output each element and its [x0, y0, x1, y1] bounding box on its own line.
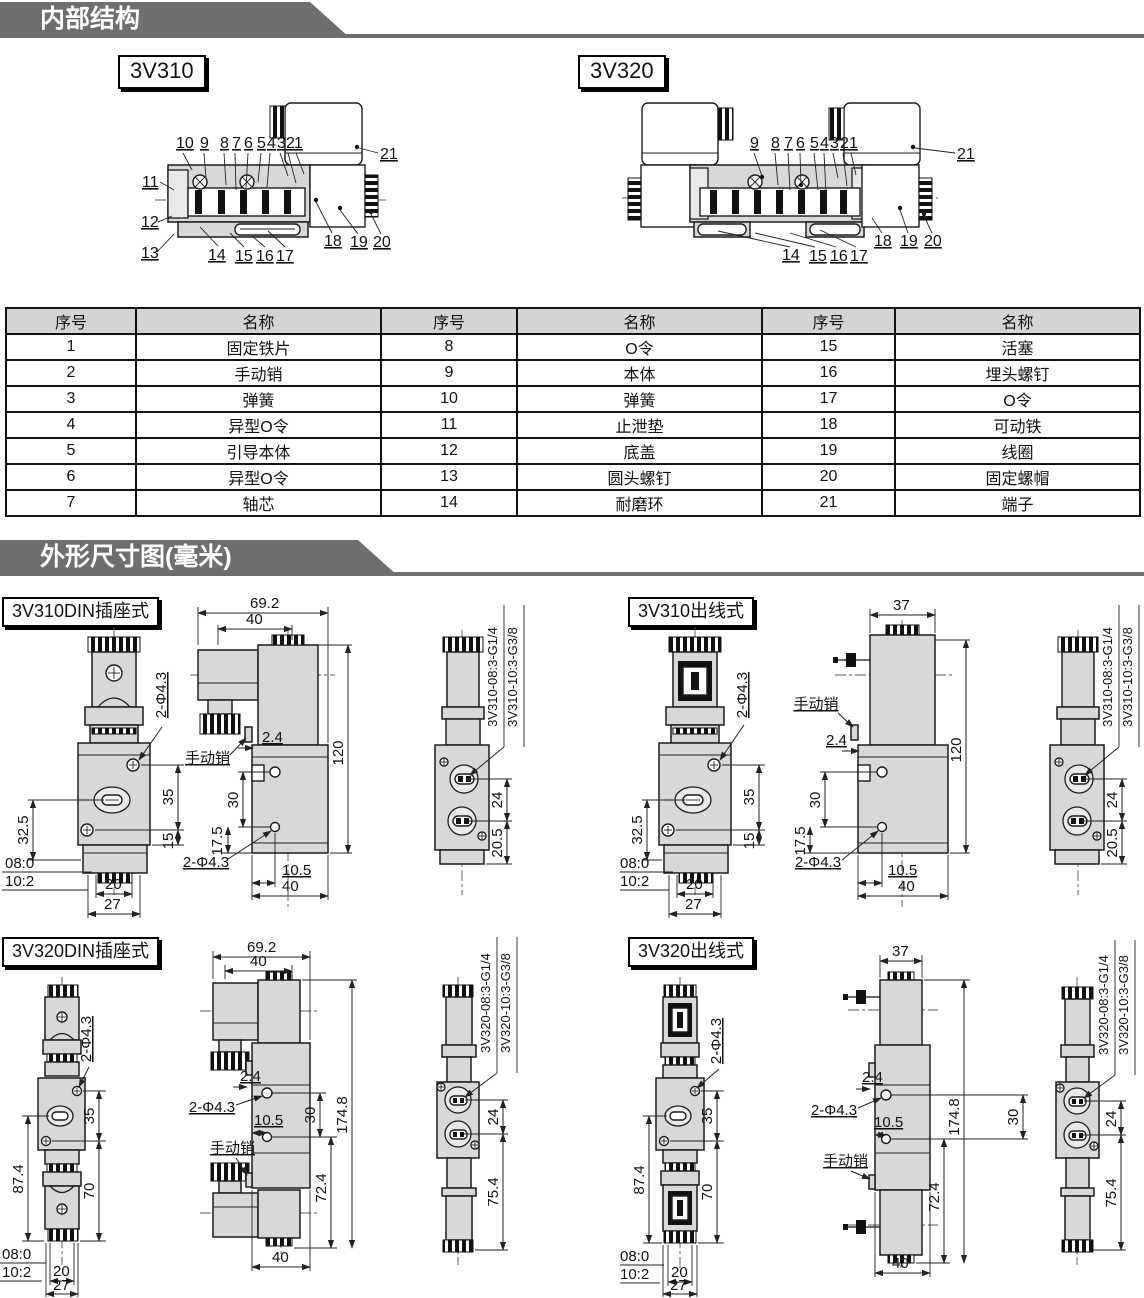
dim-label: 75.4 — [485, 1177, 502, 1206]
port-note: 10:2 — [620, 1266, 649, 1283]
dim-label: 20 — [686, 876, 703, 893]
wire-lead — [856, 990, 866, 1004]
din-screw-icon — [57, 1012, 67, 1022]
catalog-page: 内部结构 3V310 3V320 10 9 8 7 6 5 4 3 2 — [0, 0, 1144, 1298]
dim-label: 2.4 — [862, 1069, 883, 1086]
dim-label: 120 — [330, 740, 347, 765]
callout: 3 — [830, 135, 839, 152]
dim-label: 10.5 — [282, 862, 311, 879]
screw-icon — [81, 824, 93, 836]
callout: 6 — [796, 135, 805, 152]
manual-pin-label: 手动销 — [793, 696, 838, 713]
coil-block-right — [862, 165, 919, 227]
dim-label: 174.8 — [946, 1098, 963, 1136]
callout: 9 — [750, 135, 759, 152]
front-view — [656, 977, 704, 1270]
cell: 5 — [6, 438, 136, 464]
callout: 19 — [900, 233, 918, 250]
table-row: 6异型O令13圆头螺钉20固定螺帽 — [6, 464, 1140, 490]
manual-pin — [246, 1173, 252, 1187]
dim-label: 37 — [892, 943, 909, 960]
col-header: 序号 — [6, 308, 136, 334]
dim-label: 17.5 — [209, 826, 226, 855]
port-note: 10:2 — [620, 873, 649, 890]
dim-label: 15 — [741, 833, 758, 850]
coil-top — [1065, 999, 1090, 1045]
col-header: 名称 — [136, 308, 381, 334]
dim-label: 40 — [272, 1249, 289, 1266]
callout: 18 — [324, 233, 342, 250]
callout: 20 — [373, 234, 391, 251]
section-title: 内部结构 — [40, 5, 140, 33]
fixing-nut-left — [628, 178, 641, 220]
port-note: 08:0 — [620, 855, 649, 872]
dim-label: 2-Φ4.3 — [795, 854, 841, 871]
callout: 16 — [830, 248, 848, 265]
valve-body — [252, 745, 328, 853]
dim-label: 40 — [898, 878, 915, 895]
cell: 7 — [6, 490, 136, 516]
dim-label: 32.5 — [629, 815, 646, 844]
callout: 5 — [257, 135, 266, 152]
coil — [870, 635, 935, 745]
cell: O令 — [895, 386, 1140, 412]
cell: 1 — [6, 334, 136, 360]
callout: 15 — [809, 248, 827, 265]
dim-label: 2.4 — [262, 729, 283, 746]
cell: 埋头螺钉 — [895, 360, 1140, 386]
coil-bottom — [258, 1190, 300, 1238]
dim-label: 2.4 — [826, 732, 847, 749]
dim-label: 2-Φ4.3 — [189, 1099, 235, 1116]
dim-label: 120 — [948, 737, 965, 762]
coil-top — [446, 997, 472, 1045]
table-row: 3弹簧10弹簧17O令 — [6, 386, 1140, 412]
callout: 10 — [176, 135, 194, 152]
cell: 端子 — [895, 490, 1140, 516]
cell: 止泄垫 — [517, 412, 762, 438]
table-row: 5引导本体12底盖19线圈 — [6, 438, 1140, 464]
model-port-label: 3V310-10:3-G3/8 — [1120, 627, 1135, 727]
port-note: 08:0 — [2, 1246, 31, 1263]
callout: 21 — [957, 146, 975, 163]
end-view — [1050, 630, 1104, 895]
model-label-3v320: 3V320 — [578, 55, 666, 89]
dim-label: 30 — [225, 792, 242, 809]
coil-block-left — [641, 165, 695, 227]
dim-label: 40 — [246, 611, 263, 628]
manual-override-slot — [810, 224, 860, 235]
callout: 6 — [244, 135, 253, 152]
screw-icon — [708, 759, 720, 771]
dim-label: 40 — [250, 953, 267, 970]
screw-icon — [1055, 758, 1063, 766]
callout: 5 — [810, 135, 819, 152]
dim-label: 40 — [892, 1255, 909, 1272]
callout: 2 — [840, 135, 849, 152]
end-view — [435, 630, 489, 895]
cell: 可动铁 — [895, 412, 1140, 438]
cell: 轴芯 — [136, 490, 381, 516]
dim-label: 2-Φ4.3 — [708, 1018, 725, 1064]
cell: 本体 — [517, 360, 762, 386]
cell: 14 — [381, 490, 517, 516]
coil-bottom — [1065, 1196, 1090, 1240]
screw-icon — [1056, 1084, 1064, 1092]
screw-icon — [478, 832, 486, 840]
dim-label: 27 — [104, 896, 121, 913]
dim-label: 70 — [699, 1184, 716, 1201]
port-note: 08:0 — [5, 855, 34, 872]
manual-pin — [245, 727, 252, 742]
section-header-dimensions: 外形尺寸图(毫米) — [0, 540, 398, 576]
front-view — [78, 627, 150, 895]
cell: 3 — [6, 386, 136, 412]
section-title: 外形尺寸图(毫米) — [40, 543, 232, 571]
dim-label: 32.5 — [15, 815, 32, 844]
callout: 7 — [784, 135, 793, 152]
callout: 8 — [220, 135, 229, 152]
dim-label: 2.4 — [240, 1068, 261, 1085]
callout: 12 — [141, 214, 159, 231]
col-header: 序号 — [381, 308, 517, 334]
dim-label: 30 — [302, 1107, 319, 1124]
dim-label: 20 — [105, 876, 122, 893]
table-row: 2手动销9本体16埋头螺钉 — [6, 360, 1140, 386]
callout: 21 — [380, 146, 398, 163]
cell: 固定螺帽 — [895, 464, 1140, 490]
cell: 13 — [381, 464, 517, 490]
dim-label: 174.8 — [334, 1096, 351, 1134]
screw-icon — [660, 1137, 669, 1146]
cell: 16 — [762, 360, 895, 386]
model-port-label: 3V320-10:3-G3/8 — [1116, 955, 1131, 1055]
model-port-label: 3V310-08:3-G1/4 — [1100, 627, 1115, 727]
callout: 8 — [771, 135, 780, 152]
dim-label: 35 — [160, 789, 177, 806]
base — [83, 845, 147, 873]
cell: 圆头螺钉 — [517, 464, 762, 490]
col-header: 名称 — [895, 308, 1140, 334]
cell: 活塞 — [895, 334, 1140, 360]
model-port-label: 3V310-08:3-G1/4 — [485, 627, 500, 727]
base — [664, 845, 728, 873]
table-row: 1固定铁片8O令15活塞 — [6, 334, 1140, 360]
parts-table: 序号 名称 序号 名称 序号 名称 1固定铁片8O令15活塞 2手动销9本体16… — [5, 307, 1141, 517]
model-port-label: 3V320-08:3-G1/4 — [478, 953, 493, 1053]
end-view — [1056, 977, 1099, 1265]
table-row: 4异型O令11止泄垫18可动铁 — [6, 412, 1140, 438]
screw-icon — [1093, 832, 1101, 840]
callout: 1 — [294, 135, 303, 152]
dim-label: 24 — [489, 792, 506, 809]
cell: 弹簧 — [136, 386, 381, 412]
dim-label: 35 — [81, 1108, 98, 1125]
screw-icon — [437, 1083, 445, 1091]
dim-label: 24 — [485, 1109, 502, 1126]
model-port-label: 3V310-10:3-G3/8 — [505, 627, 520, 727]
manual-pin-label: 手动销 — [823, 1153, 868, 1170]
dimension-panel-3v320din: 2-Φ4.3 35 70 87.4 08:0 10:2 20 27 69.2 — [0, 935, 580, 1298]
screw-icon — [127, 759, 139, 771]
din-connector-top — [213, 983, 258, 1040]
cell: 手动销 — [136, 360, 381, 386]
dim-label: 2-Φ4.3 — [78, 1016, 95, 1062]
wire-lead — [846, 653, 856, 667]
cell: 11 — [381, 412, 517, 438]
dim-label: 27 — [53, 1277, 70, 1294]
cell: 8 — [381, 334, 517, 360]
screw-icon — [73, 1087, 82, 1096]
dim-label: 40 — [282, 878, 299, 895]
callout: 1 — [849, 135, 858, 152]
dim-label: 35 — [741, 789, 758, 806]
base — [1055, 850, 1099, 864]
callout: 3 — [277, 135, 286, 152]
section-header-internal: 内部结构 — [0, 2, 350, 38]
dim-label: 35 — [699, 1108, 716, 1125]
dim-label: 70 — [81, 1183, 98, 1200]
port-note: 10:2 — [5, 873, 34, 890]
callout: 16 — [256, 248, 274, 265]
screw-icon — [42, 1137, 51, 1146]
dim-label: 30 — [1005, 1109, 1022, 1126]
din-connector-left — [642, 103, 718, 165]
dim-label: 10.5 — [254, 1112, 283, 1129]
cell: 15 — [762, 334, 895, 360]
din-connector — [198, 650, 258, 700]
internal-drawing-3v310: 10 9 8 7 6 5 4 3 2 1 11 12 13 14 15 16 1… — [140, 90, 450, 275]
callout: 4 — [820, 135, 829, 152]
cell: 引导本体 — [136, 438, 381, 464]
cell: 4 — [6, 412, 136, 438]
cell: 17 — [762, 386, 895, 412]
cell: 19 — [762, 438, 895, 464]
internal-drawing-3v320: 9 8 7 6 5 4 3 2 1 14 15 16 17 18 19 20 2… — [620, 90, 1000, 275]
port-note: 08:0 — [620, 1248, 649, 1265]
callout: 4 — [267, 135, 276, 152]
dim-label: 27 — [670, 1277, 687, 1294]
dim-label: 20.5 — [1104, 828, 1121, 857]
screw-icon — [471, 1141, 479, 1149]
coil — [447, 652, 479, 707]
dim-label: 24 — [1103, 1111, 1120, 1128]
screw-icon — [1090, 1142, 1098, 1150]
cell: 底盖 — [517, 438, 762, 464]
dim-label: 75.4 — [1103, 1178, 1120, 1207]
model-port-label: 3V320-10:3-G3/8 — [498, 953, 513, 1053]
callout: 17 — [850, 248, 868, 265]
screw-icon — [193, 175, 207, 189]
cell: 18 — [762, 412, 895, 438]
dim-label: 2-Φ4.3 — [734, 672, 751, 718]
manual-override-slot — [235, 224, 300, 235]
callout: 18 — [874, 233, 892, 250]
callout: 14 — [782, 247, 800, 264]
manual-override-slot — [698, 224, 746, 235]
cell: 21 — [762, 490, 895, 516]
callout: 11 — [142, 174, 159, 191]
dim-label: 27 — [685, 896, 702, 913]
valve-section-3v310 — [155, 103, 388, 237]
screw-icon — [440, 758, 448, 766]
callout: 15 — [235, 248, 253, 265]
cable-gland — [718, 108, 733, 140]
callout: 9 — [200, 135, 209, 152]
din-screw-icon — [57, 1204, 67, 1214]
dim-label: 17.5 — [792, 826, 809, 855]
cell: 耐磨环 — [517, 490, 762, 516]
dimension-panel-3v310wire: 2-Φ4.3 35 15 32.5 08:0 10:2 20 27 37 手动销… — [620, 595, 1144, 940]
end-view — [437, 977, 479, 1265]
cell: 10 — [381, 386, 517, 412]
cell: O令 — [517, 334, 762, 360]
cell: 线圈 — [895, 438, 1140, 464]
dim-label: 69.2 — [250, 595, 279, 612]
coil-bottom — [880, 1190, 922, 1255]
cell: 12 — [381, 438, 517, 464]
dimension-panel-3v320wire: 2-Φ4.3 35 70 87.4 08:0 10:2 20 27 37 2.4 — [620, 935, 1144, 1298]
screw-icon — [662, 824, 674, 836]
din-connector-bottom — [213, 1193, 258, 1237]
manual-pin-label: 手动销 — [210, 1140, 255, 1157]
port-note: 10:2 — [2, 1264, 31, 1281]
cell: 固定铁片 — [136, 334, 381, 360]
callout: 19 — [350, 234, 368, 251]
cell: 异型O令 — [136, 412, 381, 438]
table-header-row: 序号 名称 序号 名称 序号 名称 — [6, 308, 1140, 334]
dim-label: 20.5 — [489, 828, 506, 857]
manual-pin — [869, 1175, 875, 1189]
valve-section-3v320 — [622, 103, 938, 237]
dim-label: 2-Φ4.3 — [183, 854, 229, 871]
callout: 13 — [141, 245, 159, 262]
wire-lead — [856, 1220, 866, 1234]
dim-label: 2-Φ4.3 — [153, 672, 170, 718]
col-header: 序号 — [762, 308, 895, 334]
callout: 14 — [208, 247, 226, 264]
dim-label: 87.4 — [10, 1164, 27, 1193]
dim-label: 15 — [160, 833, 177, 850]
din-screw-icon — [106, 665, 122, 681]
callout: 20 — [924, 233, 942, 250]
base — [440, 850, 484, 864]
model-label-3v310: 3V310 — [118, 55, 206, 89]
manual-pin-label: 手动销 — [185, 750, 230, 767]
cell: 2 — [6, 360, 136, 386]
dim-label: 37 — [893, 597, 910, 614]
cell: 弹簧 — [517, 386, 762, 412]
dim-label: 24 — [1104, 792, 1121, 809]
cable-gland — [270, 106, 285, 138]
table-row: 7轴芯14耐磨环21端子 — [6, 490, 1140, 516]
callout: 7 — [232, 135, 241, 152]
coil-bottom — [446, 1196, 472, 1240]
col-header: 名称 — [517, 308, 762, 334]
cell: 9 — [381, 360, 517, 386]
dim-label: 72.4 — [313, 1173, 330, 1202]
cell: 异型O令 — [136, 464, 381, 490]
dim-label: 10.5 — [888, 862, 917, 879]
dimension-panel-3v310din: 2-Φ4.3 35 15 32.5 08:0 10:2 20 27 69.2 4… — [0, 595, 580, 940]
model-port-label: 3V320-08:3-G1/4 — [1096, 955, 1111, 1055]
cell: 6 — [6, 464, 136, 490]
front-view — [659, 627, 731, 895]
coil-block — [310, 165, 365, 227]
dim-label: 2-Φ4.3 — [811, 1102, 857, 1119]
dim-label: 10.5 — [874, 1114, 903, 1131]
cell: 20 — [762, 464, 895, 490]
coil-top — [880, 980, 922, 1045]
din-connector-right — [844, 103, 920, 165]
dim-label: 72.4 — [926, 1182, 943, 1211]
screw-icon — [691, 1087, 700, 1096]
coil — [1062, 652, 1094, 707]
dim-label: 87.4 — [631, 1165, 648, 1194]
dim-label: 30 — [807, 792, 824, 809]
callout: 17 — [276, 248, 294, 265]
manual-pin — [851, 725, 858, 740]
coil-top — [258, 980, 300, 1043]
